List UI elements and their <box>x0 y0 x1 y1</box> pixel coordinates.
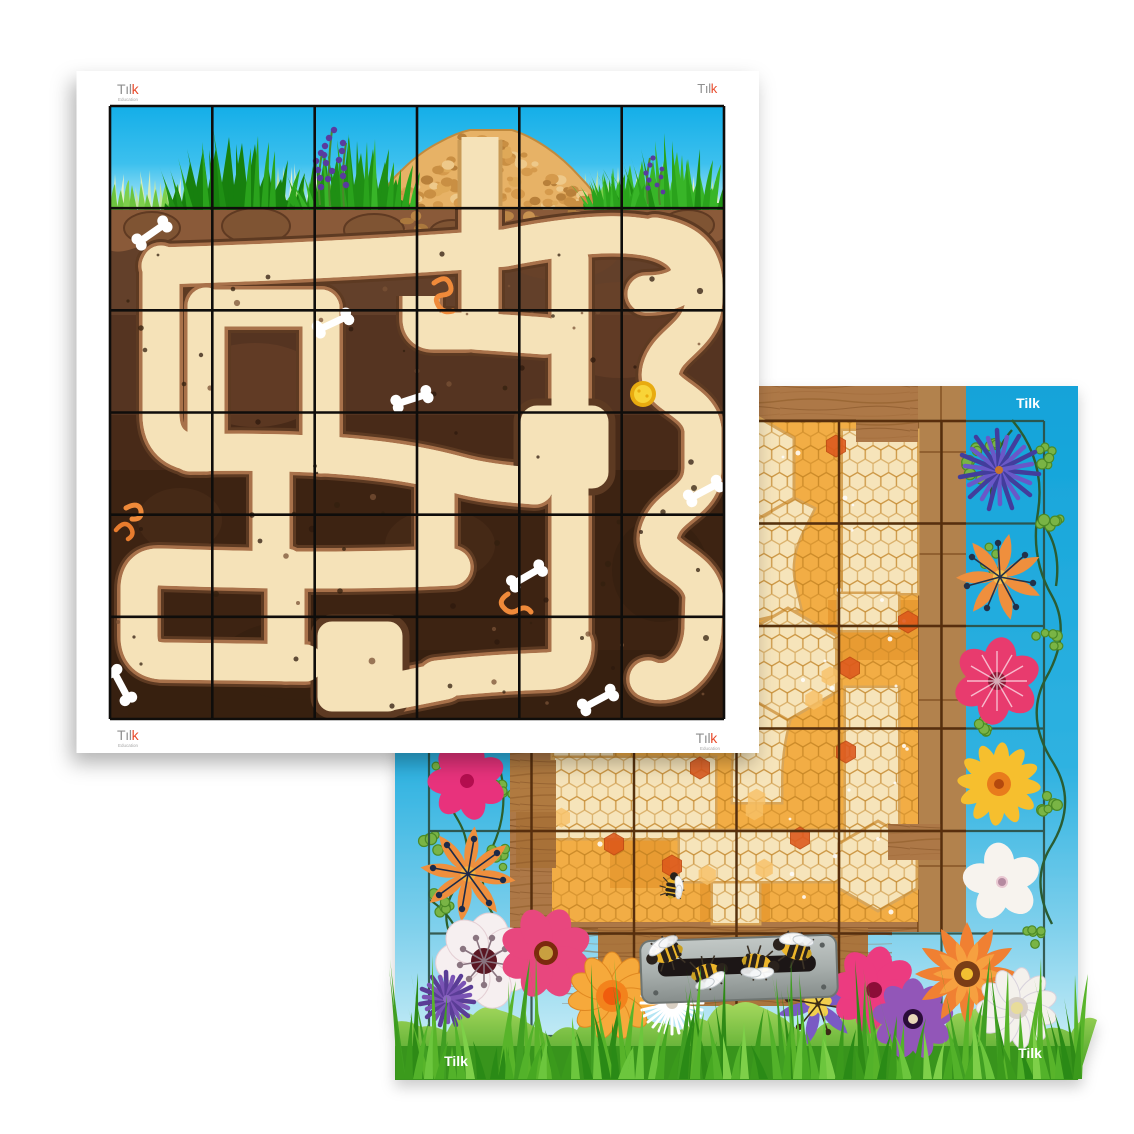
svg-text:Tılk: Tılk <box>117 727 140 743</box>
svg-text:Education: Education <box>700 746 721 751</box>
svg-text:Tılk: Tılk <box>697 81 718 96</box>
svg-text:Tılk: Tılk <box>696 730 719 746</box>
svg-text:Tılk: Tılk <box>117 81 140 97</box>
svg-text:Education: Education <box>118 97 139 102</box>
svg-text:Tilk: Tilk <box>1018 1045 1042 1061</box>
svg-text:Tilk: Tilk <box>444 1053 468 1069</box>
svg-text:Education: Education <box>118 743 139 748</box>
svg-text:Tilk: Tilk <box>1016 395 1040 411</box>
